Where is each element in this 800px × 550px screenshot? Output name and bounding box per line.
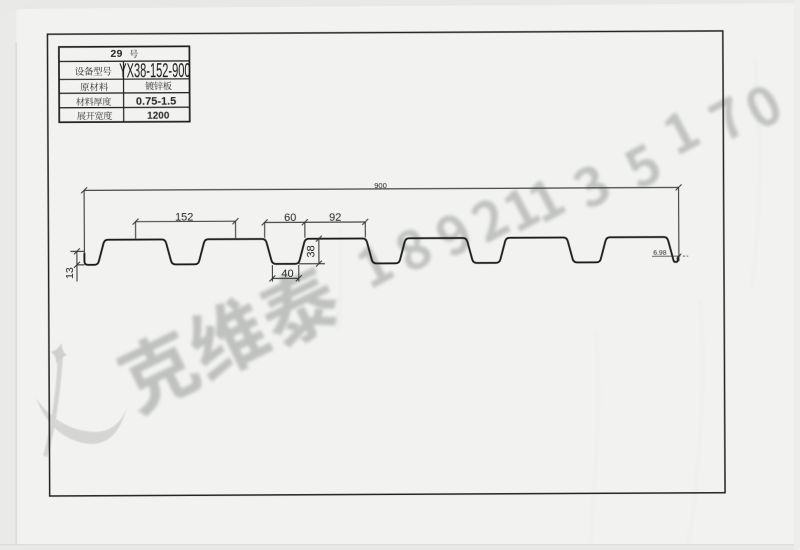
svg-text:60: 60 <box>284 212 296 224</box>
svg-text:0.75-1.5: 0.75-1.5 <box>136 96 176 108</box>
svg-text:YX38-152-900: YX38-152-900 <box>119 59 190 82</box>
svg-text:40: 40 <box>281 268 293 280</box>
svg-text:13: 13 <box>64 267 76 279</box>
svg-text:29: 29 <box>110 48 122 60</box>
svg-text:152: 152 <box>175 211 193 223</box>
svg-text:6.98: 6.98 <box>653 250 666 257</box>
svg-text:900: 900 <box>374 181 387 190</box>
svg-text:1200: 1200 <box>147 111 170 122</box>
svg-text:92: 92 <box>329 212 341 224</box>
svg-text:38: 38 <box>305 245 317 257</box>
